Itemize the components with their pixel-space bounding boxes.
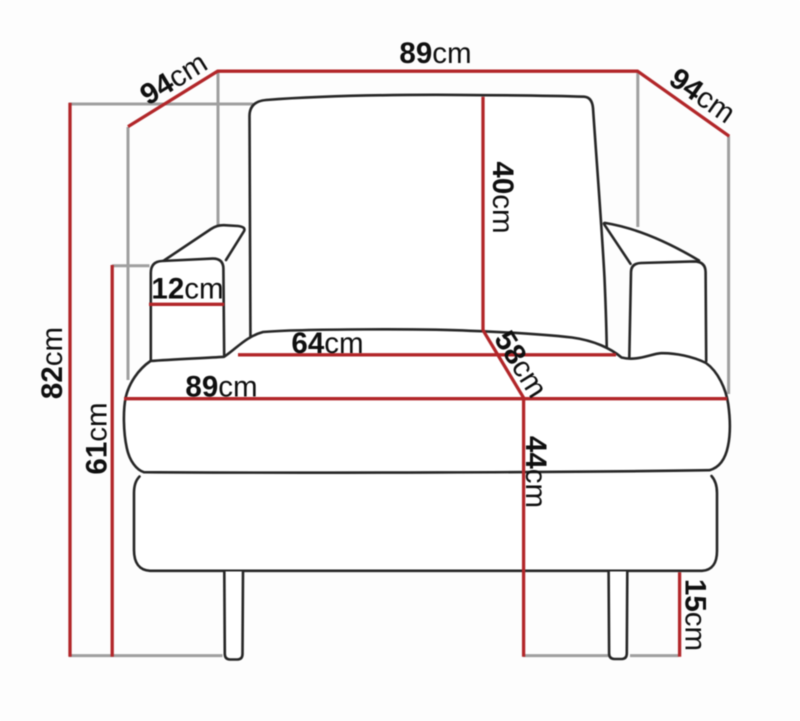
svg-text:64cm: 64cm bbox=[291, 327, 363, 360]
svg-text:44cm: 44cm bbox=[519, 436, 552, 508]
svg-text:82cm: 82cm bbox=[36, 327, 69, 399]
svg-text:61cm: 61cm bbox=[81, 402, 114, 474]
svg-text:89cm: 89cm bbox=[399, 37, 471, 70]
svg-text:89cm: 89cm bbox=[185, 371, 257, 404]
svg-text:12cm: 12cm bbox=[151, 273, 223, 306]
svg-text:15cm: 15cm bbox=[679, 579, 712, 651]
svg-text:40cm: 40cm bbox=[486, 161, 519, 233]
